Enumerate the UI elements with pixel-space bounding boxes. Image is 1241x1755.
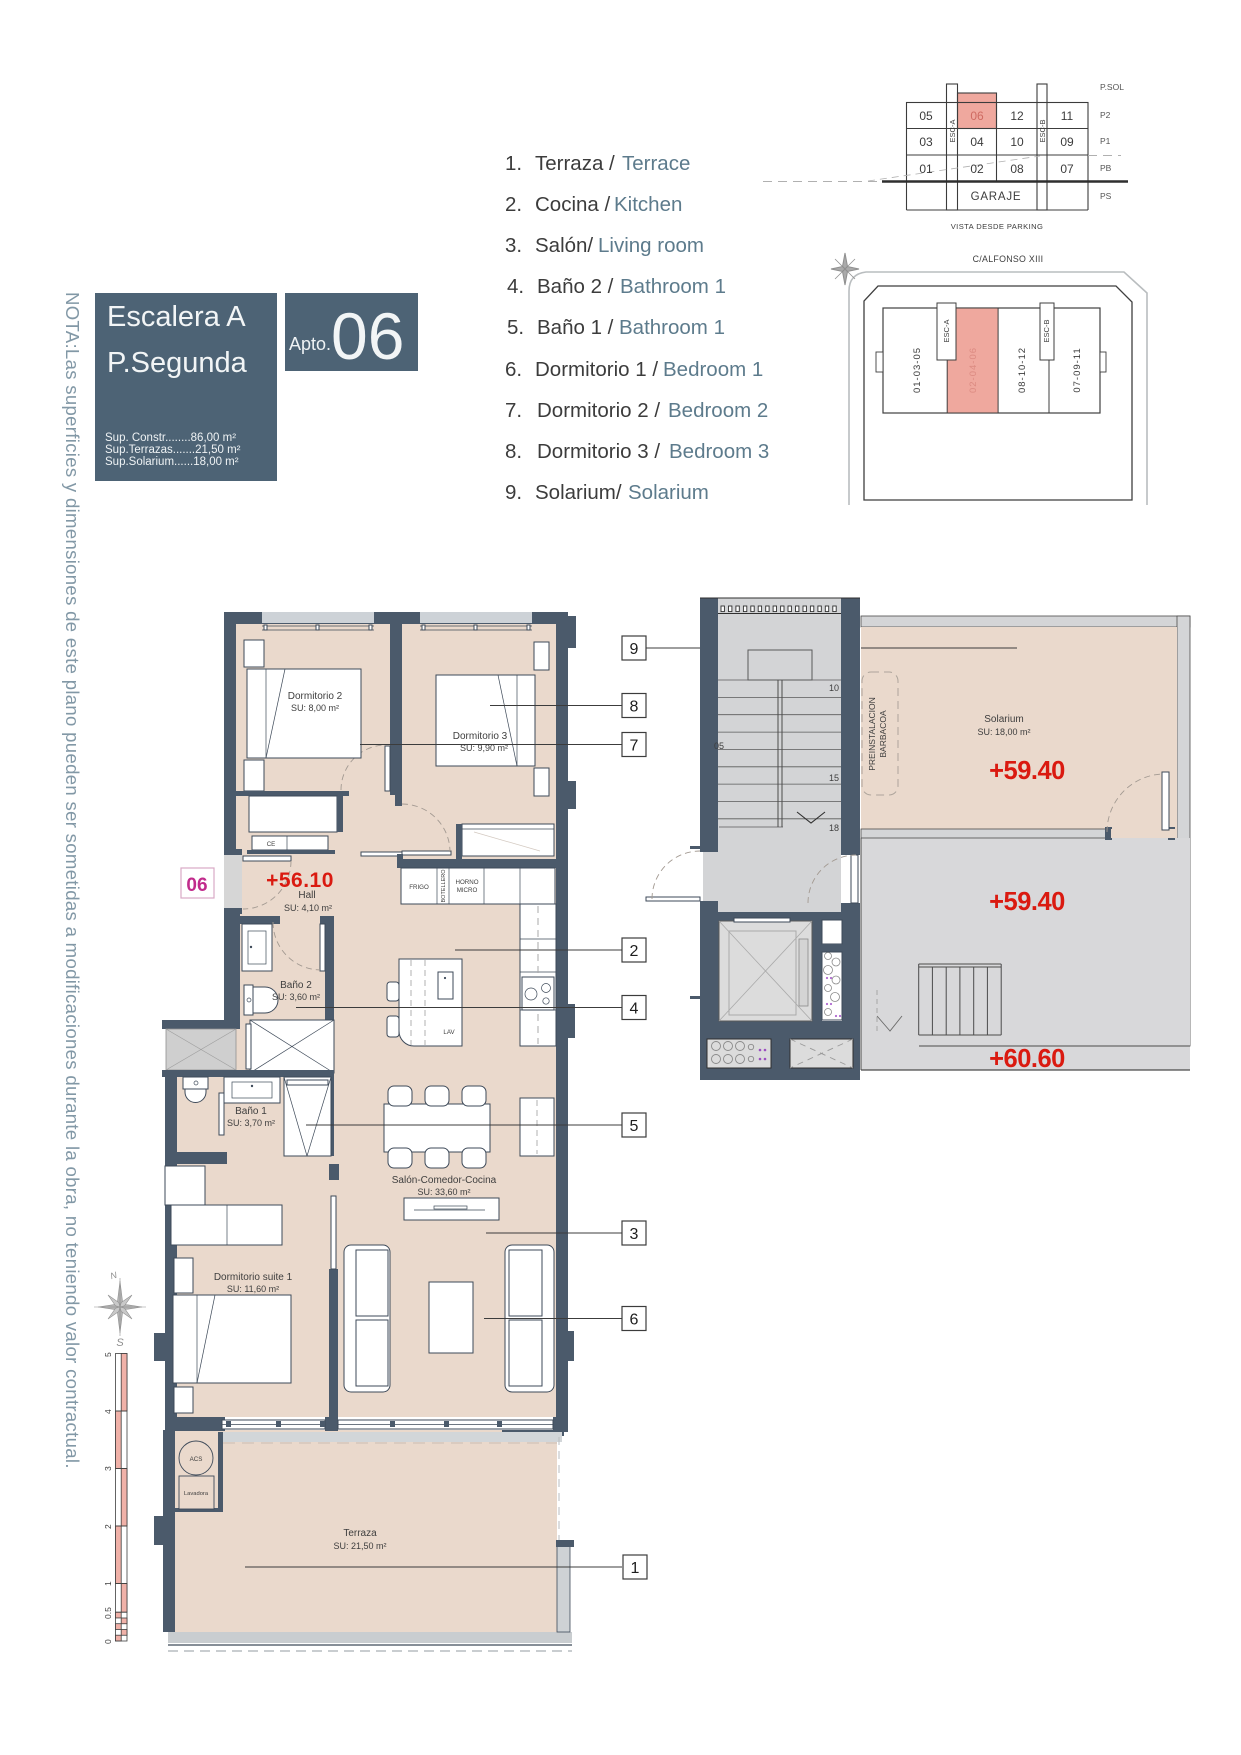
svg-text:Dormitorio 2 /: Dormitorio 2 / (537, 399, 660, 422)
svg-text:04: 04 (970, 135, 984, 149)
svg-text:02-04-06: 02-04-06 (968, 347, 979, 393)
svg-text:FRIGO: FRIGO (409, 884, 429, 891)
svg-text:Solarium: Solarium (628, 481, 709, 504)
svg-text:Salón/: Salón/ (535, 234, 593, 257)
svg-text:4.: 4. (507, 275, 524, 298)
svg-text:06: 06 (970, 109, 984, 123)
svg-text:MICRO: MICRO (457, 887, 478, 894)
svg-text:Baño 1: Baño 1 (235, 1106, 267, 1117)
svg-text:4: 4 (103, 1409, 113, 1414)
svg-text:Sup.Solarium......18,00 m²: Sup.Solarium......18,00 m² (105, 456, 239, 468)
svg-text:Bedroom 2: Bedroom 2 (668, 399, 768, 422)
svg-text:Dormitorio 1 /: Dormitorio 1 / (535, 358, 658, 381)
svg-text:SU: 21,50 m²: SU: 21,50 m² (333, 1541, 386, 1551)
svg-text:06: 06 (186, 875, 207, 896)
svg-text:Living room: Living room (598, 234, 704, 257)
svg-text:ESC-B: ESC-B (1038, 120, 1047, 143)
svg-text:Baño 2 /: Baño 2 / (537, 275, 614, 298)
svg-text:01-03-05: 01-03-05 (912, 347, 923, 393)
svg-text:Baño 1 /: Baño 1 / (537, 316, 614, 339)
svg-text:ESC-B: ESC-B (1042, 320, 1051, 343)
svg-text:P2: P2 (1100, 110, 1111, 120)
svg-text:Solarium: Solarium (984, 714, 1023, 725)
svg-text:VISTA DESDE PARKING: VISTA DESDE PARKING (951, 222, 1044, 231)
svg-text:Salón-Comedor-Cocina: Salón-Comedor-Cocina (392, 1175, 497, 1186)
svg-text:7: 7 (630, 738, 639, 755)
svg-text:3: 3 (103, 1466, 113, 1471)
svg-text:CE: CE (267, 841, 276, 848)
svg-text:6: 6 (630, 1312, 639, 1329)
svg-text:ACS: ACS (190, 1456, 203, 1463)
svg-text:9.: 9. (505, 481, 522, 504)
svg-text:SU: 18,00 m²: SU: 18,00 m² (977, 727, 1030, 737)
svg-text:Apto.: Apto. (289, 334, 331, 354)
svg-text:0: 0 (103, 1639, 113, 1644)
svg-text:2.: 2. (505, 193, 522, 216)
svg-text:8: 8 (630, 699, 639, 716)
svg-text:2: 2 (103, 1524, 113, 1529)
svg-text:Dormitorio suite 1: Dormitorio suite 1 (214, 1272, 293, 1283)
svg-text:10: 10 (829, 683, 839, 693)
svg-text:SU: 3,60 m²: SU: 3,60 m² (272, 992, 320, 1002)
svg-text:BOTELLERO: BOTELLERO (441, 869, 447, 903)
svg-text:NOTA:Las superficies y dimensi: NOTA:Las superficies y dimensiones de es… (62, 292, 83, 1469)
svg-text:5: 5 (630, 1118, 639, 1135)
svg-text:+56.10: +56.10 (266, 869, 334, 892)
svg-text:9: 9 (630, 641, 639, 658)
svg-text:11: 11 (1061, 109, 1074, 123)
svg-text:1.: 1. (505, 152, 522, 175)
svg-text:S: S (116, 1337, 124, 1349)
svg-text:+59.40: +59.40 (989, 888, 1065, 916)
svg-text:P1: P1 (1100, 136, 1111, 146)
svg-text:Escalera A: Escalera A (107, 301, 246, 333)
svg-text:Dormitorio 3: Dormitorio 3 (453, 731, 508, 742)
svg-text:P.SOL: P.SOL (1100, 82, 1124, 92)
svg-text:1: 1 (631, 1560, 640, 1577)
svg-text:PREINSTALACION: PREINSTALACION (867, 697, 877, 771)
svg-text:Solarium/: Solarium/ (535, 481, 622, 504)
svg-text:18: 18 (829, 823, 839, 833)
svg-text:Dormitorio 2: Dormitorio 2 (288, 691, 343, 702)
svg-text:3.: 3. (505, 234, 522, 257)
svg-text:SU: 4,10 m²: SU: 4,10 m² (284, 903, 332, 913)
svg-text:P.Segunda: P.Segunda (107, 347, 248, 379)
svg-text:SU: 33,60 m²: SU: 33,60 m² (417, 1187, 470, 1197)
svg-text:Terraza: Terraza (343, 1528, 377, 1539)
svg-text:05: 05 (714, 741, 724, 751)
svg-text:07-09-11: 07-09-11 (1072, 347, 1083, 392)
svg-text:C/ALFONSO XIII: C/ALFONSO XIII (973, 254, 1044, 264)
svg-text:08: 08 (1010, 162, 1024, 176)
svg-text:ESC-A: ESC-A (942, 320, 951, 343)
svg-text:Hall: Hall (298, 890, 315, 901)
svg-text:PS: PS (1100, 191, 1112, 201)
svg-text:Bathroom 1: Bathroom 1 (619, 316, 725, 339)
svg-text:Sup.Terrazas.......21,50 m²: Sup.Terrazas.......21,50 m² (105, 444, 241, 456)
svg-text:5: 5 (103, 1352, 113, 1357)
svg-text:05: 05 (919, 109, 933, 123)
svg-text:LAV: LAV (443, 1029, 455, 1036)
svg-text:BARBACOA: BARBACOA (878, 710, 888, 758)
svg-text:2: 2 (630, 943, 639, 960)
svg-text:7.: 7. (505, 399, 522, 422)
svg-text:8.: 8. (505, 440, 522, 463)
svg-text:3: 3 (630, 1226, 639, 1243)
svg-text:1: 1 (103, 1581, 113, 1586)
svg-text:GARAJE: GARAJE (971, 191, 1022, 203)
svg-text:08-10-12: 08-10-12 (1017, 347, 1028, 393)
svg-text:PB: PB (1100, 163, 1112, 173)
svg-text:Terrace: Terrace (622, 152, 690, 175)
svg-text:07: 07 (1060, 162, 1074, 176)
svg-text:Lavadora: Lavadora (184, 1491, 209, 1497)
svg-text:Dormitorio 3 /: Dormitorio 3 / (537, 440, 660, 463)
svg-text:03: 03 (919, 135, 933, 149)
svg-text:ESC-A: ESC-A (948, 120, 957, 143)
svg-text:01: 01 (919, 162, 933, 176)
svg-text:15: 15 (829, 773, 839, 783)
svg-text:12: 12 (1010, 109, 1024, 123)
svg-text:Bathroom 1: Bathroom 1 (620, 275, 726, 298)
svg-text:Baño 2: Baño 2 (280, 980, 312, 991)
svg-text:5.: 5. (507, 316, 524, 339)
svg-text:09: 09 (1060, 135, 1074, 149)
svg-text:Bedroom 1: Bedroom 1 (663, 358, 763, 381)
svg-text:SU: 8,00 m²: SU: 8,00 m² (291, 703, 339, 713)
svg-text:SU: 3,70 m²: SU: 3,70 m² (227, 1118, 275, 1128)
svg-text:Sup. Constr........86,00 m²: Sup. Constr........86,00 m² (105, 432, 236, 444)
svg-text:Terraza /: Terraza / (535, 152, 615, 175)
svg-text:Cocina /: Cocina / (535, 193, 611, 216)
svg-text:+60.60: +60.60 (989, 1045, 1065, 1073)
svg-text:Bedroom 3: Bedroom 3 (669, 440, 769, 463)
svg-text:Kitchen: Kitchen (614, 193, 682, 216)
svg-text:10: 10 (1010, 135, 1024, 149)
svg-text:6.: 6. (505, 358, 522, 381)
svg-text:HORNO: HORNO (455, 879, 478, 886)
svg-text:06: 06 (331, 299, 404, 373)
svg-text:SU: 11,60 m²: SU: 11,60 m² (227, 1284, 279, 1294)
svg-text:0.5: 0.5 (103, 1607, 113, 1619)
svg-text:+59.40: +59.40 (989, 757, 1065, 785)
svg-text:02: 02 (970, 162, 984, 176)
svg-text:4: 4 (630, 1001, 639, 1018)
